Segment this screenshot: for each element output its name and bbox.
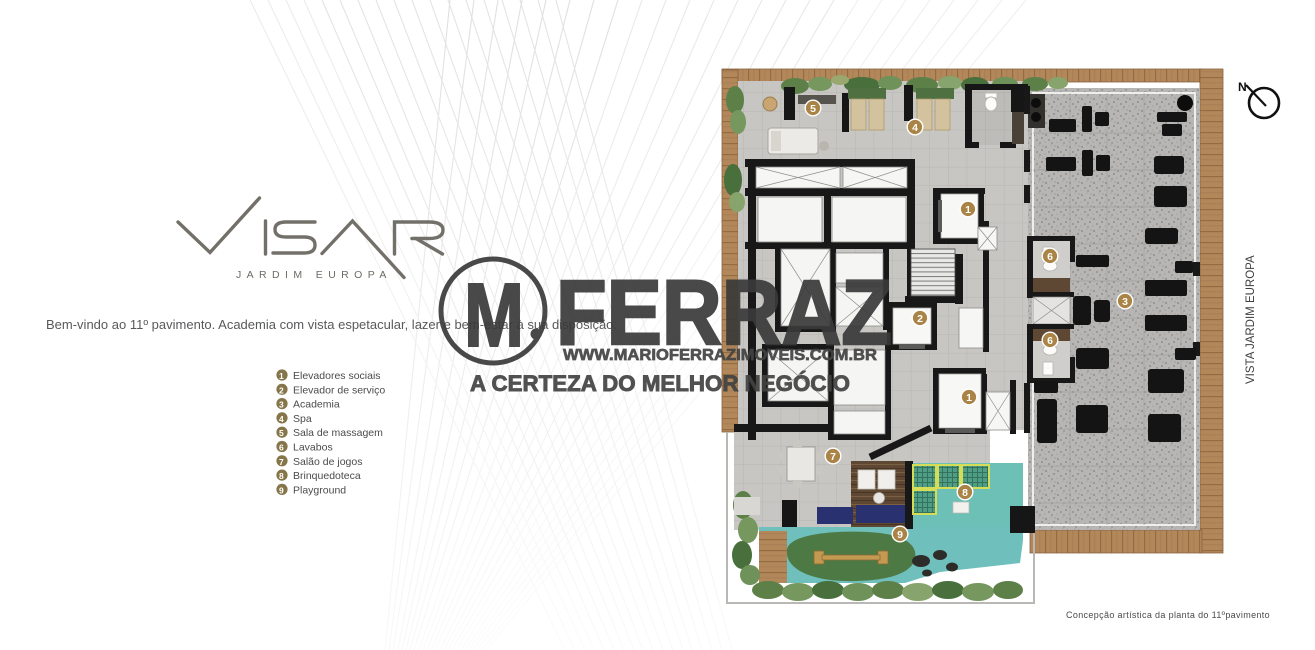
svg-text:Brinquedoteca: Brinquedoteca — [293, 470, 361, 482]
svg-text:8: 8 — [279, 471, 284, 481]
svg-text:2: 2 — [917, 313, 923, 325]
svg-text:Bem-vindo ao 11º pavimento. Ac: Bem-vindo ao 11º pavimento. Academia com… — [46, 317, 617, 332]
svg-text:6: 6 — [279, 443, 284, 453]
svg-text:Concepção artística da planta: Concepção artística da planta do 11ºpavi… — [1066, 610, 1270, 620]
svg-text:1: 1 — [966, 392, 972, 404]
svg-text:A CERTEZA DO MELHOR NEGÓCIO: A CERTEZA DO MELHOR NEGÓCIO — [470, 371, 850, 396]
svg-text:Elevador de serviço: Elevador de serviço — [293, 384, 385, 396]
svg-text:5: 5 — [279, 428, 284, 438]
svg-text:3: 3 — [1122, 296, 1128, 308]
svg-text:9: 9 — [897, 529, 903, 541]
svg-text:6: 6 — [1047, 335, 1053, 347]
svg-text:9: 9 — [279, 485, 284, 495]
svg-text:WWW.MARIOFERRAZIMOVEIS.COM.BR: WWW.MARIOFERRAZIMOVEIS.COM.BR — [563, 347, 877, 364]
svg-text:Salão de jogos: Salão de jogos — [293, 456, 362, 468]
svg-text:3: 3 — [279, 400, 284, 410]
svg-text:7: 7 — [279, 457, 284, 467]
svg-text:7: 7 — [830, 451, 836, 463]
svg-text:Elevadores sociais: Elevadores sociais — [293, 370, 381, 382]
svg-text:4: 4 — [912, 122, 918, 134]
svg-text:2: 2 — [279, 385, 284, 395]
svg-text:VISTA JARDIM EUROPA: VISTA JARDIM EUROPA — [1245, 255, 1257, 384]
svg-text:Spa: Spa — [293, 413, 312, 425]
svg-text:M: M — [464, 266, 524, 366]
svg-text:Sala de massagem: Sala de massagem — [293, 427, 383, 439]
svg-text:1: 1 — [279, 371, 284, 381]
svg-text:Academia: Academia — [293, 399, 340, 411]
svg-text:6: 6 — [1047, 251, 1053, 263]
svg-text:5: 5 — [810, 103, 816, 115]
svg-text:4: 4 — [279, 414, 284, 424]
svg-text:N: N — [1238, 80, 1247, 94]
svg-text:JARDIM EUROPA: JARDIM EUROPA — [236, 269, 392, 281]
svg-text:Lavabos: Lavabos — [293, 442, 333, 454]
svg-text:1: 1 — [965, 204, 971, 216]
svg-text:Playground: Playground — [293, 484, 346, 496]
svg-text:8: 8 — [962, 487, 968, 499]
